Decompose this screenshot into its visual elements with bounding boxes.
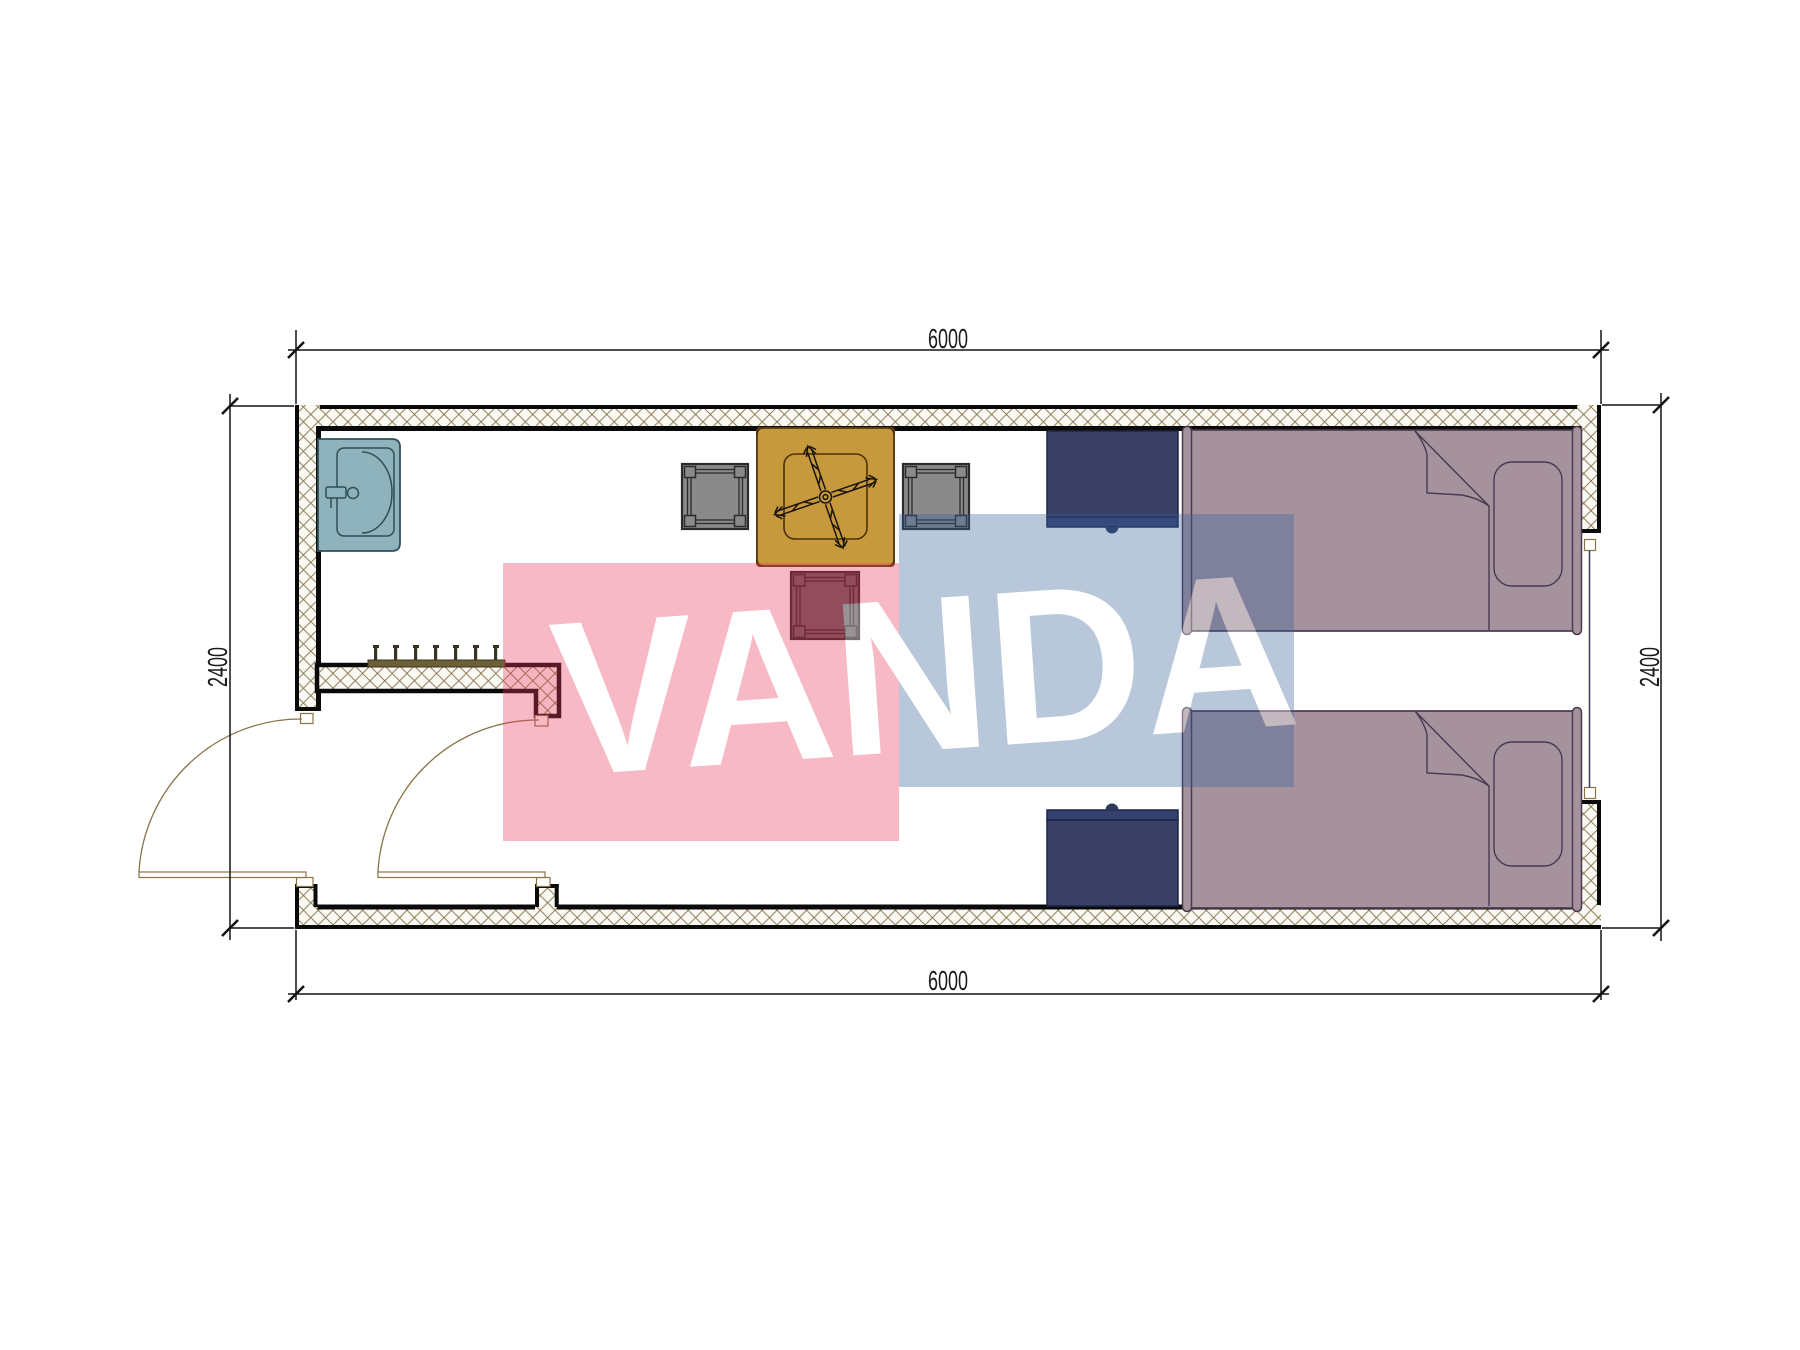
svg-text:6000: 6000 (928, 965, 968, 996)
svg-text:2400: 2400 (202, 647, 233, 687)
svg-text:2400: 2400 (1634, 647, 1665, 687)
svg-text:VANDA: VANDA (544, 525, 1305, 822)
svg-text:6000: 6000 (928, 323, 968, 354)
